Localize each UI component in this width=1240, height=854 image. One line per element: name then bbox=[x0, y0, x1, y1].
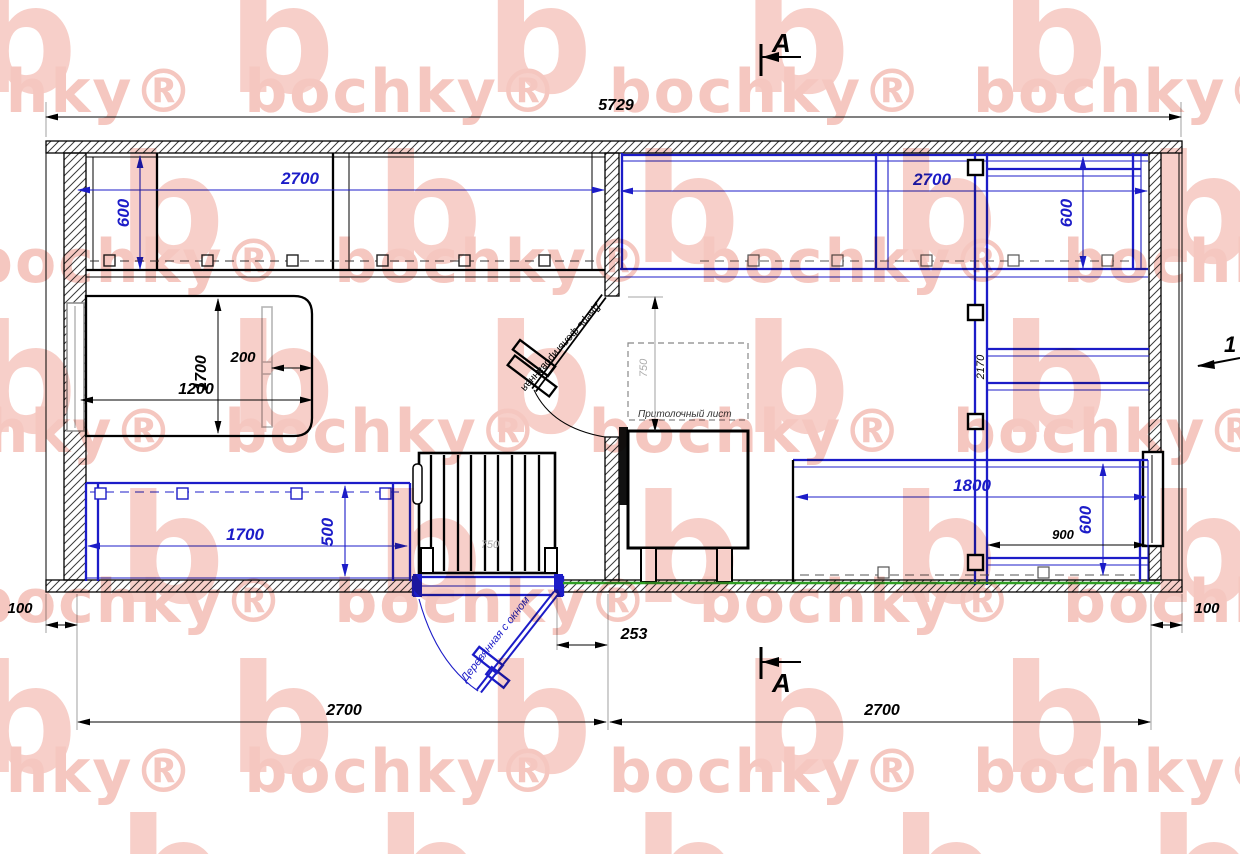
left-top-shelf bbox=[86, 153, 605, 277]
dim-bed-width: 1200 bbox=[178, 381, 214, 398]
dim-door-offset: 253 bbox=[620, 626, 648, 643]
dim-left-bench-length: 1700 bbox=[226, 525, 264, 544]
dim-right-bench-part: 900 bbox=[1052, 527, 1074, 542]
dim-right-bench-depth: 600 bbox=[1076, 505, 1095, 534]
view-label-side: 1 bbox=[1224, 332, 1236, 357]
dim-overhang-left: 100 bbox=[7, 600, 33, 617]
stove: Притолочный лист 750 bbox=[619, 297, 748, 582]
partition-wall-lower bbox=[605, 437, 619, 580]
left-wall-window bbox=[67, 303, 84, 431]
ceiling-sheet-label: Притолочный лист bbox=[638, 409, 732, 420]
sauna-heater: 750 bbox=[413, 453, 557, 573]
dim-screen-height: 2170 bbox=[975, 354, 987, 380]
section-marker-top: А bbox=[761, 28, 801, 76]
dim-left-bench-depth: 500 bbox=[318, 517, 337, 546]
partition-door: Дверь фольгированная bbox=[508, 296, 605, 437]
right-wall-window bbox=[1143, 452, 1163, 546]
right-shelves bbox=[987, 349, 1149, 390]
screen-partition: 2170 bbox=[968, 153, 987, 585]
dim-right-bench-length: 1800 bbox=[953, 476, 991, 495]
dim-bed-slat: 200 bbox=[229, 349, 256, 366]
dim-room-right: 2700 bbox=[863, 702, 900, 719]
dim-left-shelf-length: 2700 bbox=[280, 169, 319, 188]
dim-left-shelf-depth: 600 bbox=[114, 198, 133, 227]
dim-right-shelf-length: 2700 bbox=[912, 170, 951, 189]
dim-overall-width: 5729 bbox=[598, 97, 634, 114]
dim-room-left: 2700 bbox=[325, 702, 362, 719]
dim-right-shelf-depth: 600 bbox=[1057, 198, 1076, 227]
floor-plan-drawing: 750 Деревянная с окном Дверь фольгирован… bbox=[0, 0, 1240, 854]
dim-stove-gap: 750 bbox=[638, 358, 650, 377]
entrance-door: Деревянная с окном bbox=[413, 574, 563, 691]
dim-overhang-right: 100 bbox=[1194, 600, 1220, 617]
walls bbox=[46, 141, 1182, 592]
section-label-bottom: А bbox=[771, 668, 791, 698]
section-marker-bottom: А bbox=[761, 647, 801, 698]
partition-wall-upper bbox=[605, 153, 619, 296]
section-label-top: А bbox=[771, 28, 791, 58]
heater-width-label: 750 bbox=[481, 539, 500, 551]
floor-plan-svg: 750 Деревянная с окном Дверь фольгирован… bbox=[0, 0, 1240, 854]
view-marker-side: 1 bbox=[1197, 332, 1240, 369]
